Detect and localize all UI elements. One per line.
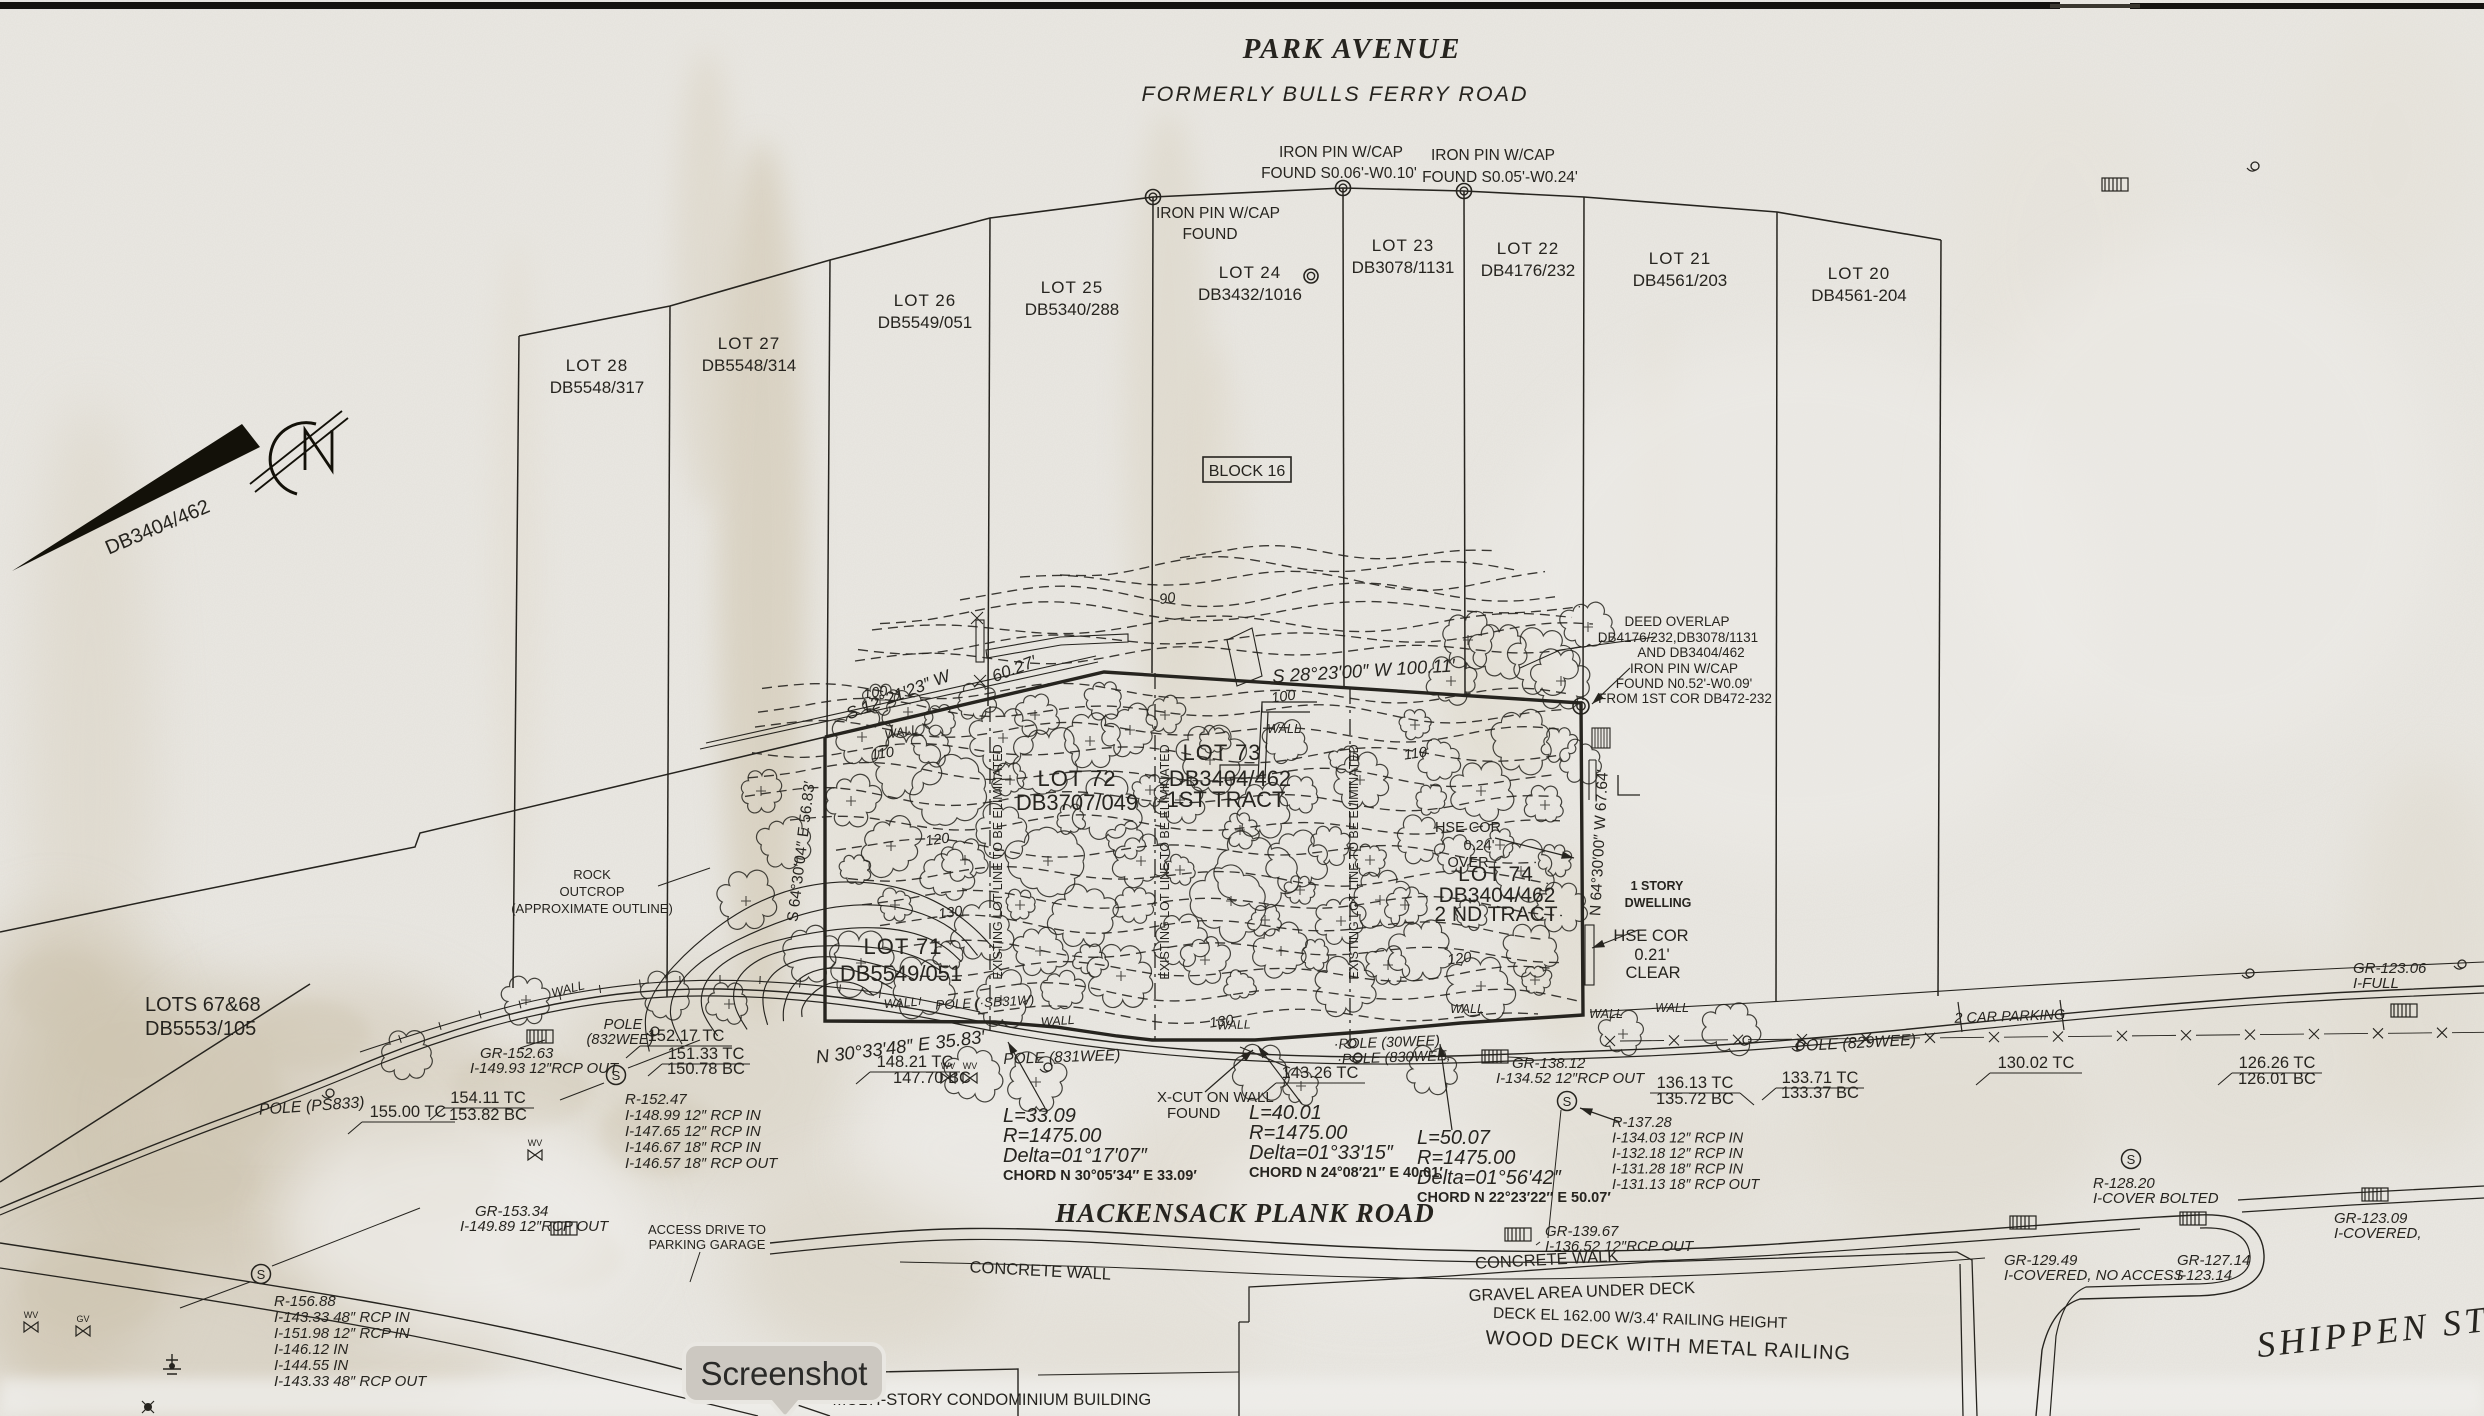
svg-text:R=1475.00: R=1475.00 [1249,1122,1347,1144]
svg-text:I-146.67 18″ RCP IN: I-146.67 18″ RCP IN [625,1139,761,1156]
svg-text:WV: WV [528,1138,543,1148]
svg-text:LOT 28: LOT 28 [566,356,628,375]
svg-text:S: S [1563,1094,1572,1109]
svg-text:DB3707/049: DB3707/049 [1016,790,1138,815]
svg-text:110: 110 [1403,745,1428,764]
svg-text:I-131.28 18″ RCP IN: I-131.28 18″ RCP IN [1612,1162,1744,1178]
svg-text:EXISTING LOT LINE TO BE ELIMIN: EXISTING LOT LINE TO BE ELIMINATED [1347,744,1361,979]
svg-text:L=33.09: L=33.09 [1003,1105,1076,1127]
svg-text:153.82 BC: 153.82 BC [449,1106,527,1124]
svg-text:ROCK: ROCK [573,867,611,882]
svg-text:WALL: WALL [1655,1001,1689,1015]
svg-text:I-149.89 12″RCP OUT: I-149.89 12″RCP OUT [460,1218,610,1235]
svg-text:S: S [257,1267,266,1282]
svg-text:(832WEE): (832WEE) [587,1032,654,1048]
svg-text:LOT 22: LOT 22 [1497,239,1559,258]
svg-text:I-143.33 48″ RCP OUT: I-143.33 48″ RCP OUT [274,1373,428,1390]
svg-text:WALL: WALL [1217,1017,1251,1032]
svg-text:EXISTING LOT LINE TO BE ELIMIN: EXISTING LOT LINE TO BE ELIMINATED [991,744,1005,979]
svg-text:0.24': 0.24' [1464,838,1495,854]
svg-text:POLE: POLE [604,1017,643,1033]
svg-text:I-COVERED,: I-COVERED, [2334,1225,2422,1242]
svg-text:133.37 BC: 133.37 BC [1781,1084,1859,1102]
svg-text:LOT 21: LOT 21 [1649,249,1711,268]
svg-text:DB5548/314: DB5548/314 [702,356,797,375]
svg-text:I-147.65 12″ RCP IN: I-147.65 12″ RCP IN [625,1123,761,1140]
svg-text:EXISTING LOT LINE TO BE ELIMIN: EXISTING LOT LINE TO BE ELIMINATED [1158,744,1172,979]
svg-text:DB3432/1016: DB3432/1016 [1198,285,1302,304]
svg-text:WALL: WALL [1589,1007,1623,1021]
svg-text:I-149.93 12″RCP OUT: I-149.93 12″RCP OUT [470,1060,620,1077]
svg-text:FOUND N0.52'-W0.09': FOUND N0.52'-W0.09' [1616,676,1752,691]
svg-text:155.00 TC: 155.00 TC [370,1103,447,1121]
svg-text:I-134.52 12″RCP OUT: I-134.52 12″RCP OUT [1496,1070,1646,1087]
svg-text:2 ND TRACT: 2 ND TRACT [1434,903,1557,926]
svg-text:126.01 BC: 126.01 BC [2238,1070,2316,1088]
svg-text:LOT 24: LOT 24 [1219,263,1281,282]
svg-text:130: 130 [937,903,963,922]
svg-text:X-CUT ON WALL: X-CUT ON WALL [1157,1089,1274,1106]
svg-text:CHORD N 30°05′34″ E 33.09′: CHORD N 30°05′34″ E 33.09′ [1003,1168,1197,1184]
svg-text:(APPROXIMATE OUTLINE): (APPROXIMATE OUTLINE) [511,901,673,916]
svg-text:WALL: WALL [1040,1013,1075,1029]
svg-text:FOUND S0.05'-W0.24': FOUND S0.05'-W0.24' [1422,169,1578,186]
svg-text:LOT 20: LOT 20 [1828,264,1890,283]
svg-text:PARK AVENUE: PARK AVENUE [1242,33,1462,65]
svg-text:DB5549/051: DB5549/051 [840,961,962,986]
svg-text:I-143.33 48″ RCP IN: I-143.33 48″ RCP IN [274,1309,410,1326]
svg-text:WALL: WALL [883,995,918,1011]
svg-text:CLEAR: CLEAR [1625,964,1680,982]
svg-text:Delta=01°33′15″: Delta=01°33′15″ [1249,1142,1394,1164]
svg-text:FOUND: FOUND [1167,1105,1220,1122]
svg-text:HSE COR: HSE COR [1613,927,1688,945]
svg-text:WALL: WALL [1450,1002,1484,1016]
svg-text:OUTCROP: OUTCROP [560,884,625,899]
svg-text:150.78 BC: 150.78 BC [667,1060,745,1078]
svg-text:I-COVER BOLTED: I-COVER BOLTED [2093,1190,2219,1207]
svg-text:120: 120 [924,830,950,849]
svg-text:I-123.14: I-123.14 [2177,1267,2232,1284]
svg-text:OVER: OVER [1447,855,1488,871]
svg-text:LOT 73: LOT 73 [1183,740,1262,765]
svg-text:R-137.28: R-137.28 [1612,1115,1672,1131]
svg-text:DWELLING: DWELLING [1625,896,1692,910]
svg-text:WALL: WALL [1267,722,1301,736]
svg-text:90: 90 [1158,590,1176,608]
svg-text:Delta=01°17′07″: Delta=01°17′07″ [1003,1145,1148,1167]
svg-text:GV: GV [76,1314,89,1324]
svg-text:I-144.55 IN: I-144.55 IN [274,1357,348,1374]
svg-text:FOUND: FOUND [1182,226,1237,243]
svg-text:I-FULL: I-FULL [2353,975,2399,992]
svg-text:HSE COR: HSE COR [1435,820,1501,836]
svg-text:PARKING GARAGE: PARKING GARAGE [649,1237,766,1252]
svg-text:DB4561-204: DB4561-204 [1811,286,1906,305]
svg-text:I-COVERED, NO ACCESS: I-COVERED, NO ACCESS [2004,1267,2183,1284]
svg-text:FORMERLY BULLS FERRY ROAD: FORMERLY BULLS FERRY ROAD [1142,82,1529,106]
svg-text:147.70 BC: 147.70 BC [893,1069,971,1087]
svg-text:ACCESS DRIVE TO: ACCESS DRIVE TO [648,1222,766,1237]
svg-text:S: S [2127,1152,2136,1167]
svg-text:I-132.18 12″ RCP IN: I-132.18 12″ RCP IN [1612,1146,1744,1162]
svg-text:Delta=01°56′42″: Delta=01°56′42″ [1417,1167,1562,1189]
svg-text:R=1475.00: R=1475.00 [1003,1125,1101,1147]
svg-text:LOT 72: LOT 72 [1038,766,1117,791]
svg-text:R=1475.00: R=1475.00 [1417,1147,1515,1169]
svg-text:1ST TRACT: 1ST TRACT [1167,787,1286,812]
svg-text:R-152.47: R-152.47 [625,1091,687,1108]
svg-text:LOT 25: LOT 25 [1041,278,1103,297]
svg-text:I-134.03 12″ RCP IN: I-134.03 12″ RCP IN [1612,1131,1744,1147]
svg-text:IRON PIN W/CAP: IRON PIN W/CAP [1156,205,1280,222]
svg-text:CHORD N 24°08′21″ E 40.01′: CHORD N 24°08′21″ E 40.01′ [1249,1165,1443,1181]
svg-text:DB5340/288: DB5340/288 [1025,300,1120,319]
svg-text:152.17 TC: 152.17 TC [648,1027,725,1045]
svg-text:LOT 23: LOT 23 [1372,236,1434,255]
svg-text:FOUND S0.06'-W0.10': FOUND S0.06'-W0.10' [1261,165,1417,182]
svg-text:110: 110 [870,745,895,764]
svg-text:LOT 71: LOT 71 [864,934,943,959]
svg-text:IRON PIN W/CAP: IRON PIN W/CAP [1630,661,1738,676]
svg-text:BLOCK 16: BLOCK 16 [1209,463,1286,480]
svg-text:AND DB3404/462: AND DB3404/462 [1637,645,1744,660]
svg-text:HACKENSACK PLANK ROAD: HACKENSACK PLANK ROAD [1054,1198,1435,1228]
svg-text:IRON PIN W/CAP: IRON PIN W/CAP [1431,147,1555,164]
svg-text:1 STORY: 1 STORY [1631,879,1684,893]
svg-text:I-146.12 IN: I-146.12 IN [274,1341,348,1358]
svg-text:DB5549/051: DB5549/051 [878,313,973,332]
svg-text:FROM 1ST COR DB472-232: FROM 1ST COR DB472-232 [1598,691,1772,706]
svg-text:Screenshot: Screenshot [701,1355,868,1392]
svg-text:DB4176/232,DB3078/1131: DB4176/232,DB3078/1131 [1598,630,1758,645]
svg-text:DB5553/105: DB5553/105 [145,1018,256,1040]
svg-text:I-146.57 18″ RCP OUT: I-146.57 18″ RCP OUT [625,1155,779,1172]
svg-text:130.02 TC: 130.02 TC [1998,1054,2075,1072]
svg-text:R-156.88: R-156.88 [274,1293,336,1310]
svg-text:WV: WV [24,1310,39,1320]
svg-text:120: 120 [1446,949,1472,968]
svg-text:L=50.07: L=50.07 [1417,1127,1491,1149]
svg-text:DB5548/317: DB5548/317 [550,378,645,397]
svg-text:100: 100 [862,683,888,702]
svg-text:I-148.99 12″ RCP IN: I-148.99 12″ RCP IN [625,1107,761,1124]
svg-text:DB4176/232: DB4176/232 [1481,261,1576,280]
svg-text:DB4561/203: DB4561/203 [1633,271,1728,290]
svg-text:135.72 BC: 135.72 BC [1656,1090,1734,1108]
svg-text:IRON PIN W/CAP: IRON PIN W/CAP [1279,144,1403,161]
svg-text:LOTS 67&68: LOTS 67&68 [145,994,261,1016]
svg-text:100: 100 [1270,687,1296,706]
svg-text:143.26 TC: 143.26 TC [1282,1064,1359,1082]
svg-text:I-131.13 18″ RCP OUT: I-131.13 18″ RCP OUT [1612,1177,1760,1193]
svg-text:LOT 27: LOT 27 [718,334,780,353]
svg-text:LOT 26: LOT 26 [894,291,956,310]
svg-text:DEED OVERLAP: DEED OVERLAP [1624,614,1729,629]
svg-text:I-151.98 12″ RCP IN: I-151.98 12″ RCP IN [274,1325,410,1342]
svg-text:CHORD N 22°23′22″ E 50.07′: CHORD N 22°23′22″ E 50.07′ [1417,1190,1611,1206]
svg-text:DB3078/1131: DB3078/1131 [1352,258,1455,277]
svg-text:154.11 TC: 154.11 TC [450,1089,526,1107]
svg-text:0.21': 0.21' [1634,946,1669,964]
